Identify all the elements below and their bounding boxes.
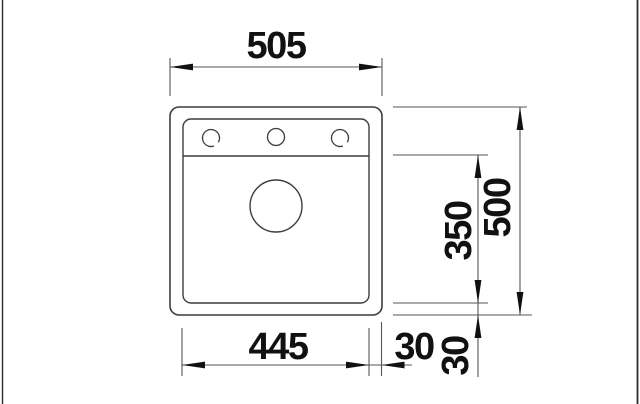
arrow-500-up-icon [517,107,524,130]
dim-label-overall-depth: 500 [479,179,517,238]
dim-label-side-offset: 30 [394,328,433,366]
drain-circle-icon [250,180,302,232]
sink-body [170,107,382,315]
arrow-505-right-icon [359,64,382,71]
arrow-445-left-icon [182,362,205,369]
tap-hole-left-icon [202,130,219,147]
tap-hole-center-icon [268,129,285,146]
arrow-350-up-icon [475,155,482,178]
arrow-505-left-icon [170,64,193,71]
dim-label-bowl-depth: 350 [440,202,478,261]
arrow-500-down-icon [517,292,524,315]
tap-hole-right-icon [331,130,348,147]
dim-label-overall-width: 505 [247,27,306,65]
dim-label-bowl-width: 445 [249,328,308,366]
arrow-30-vertical-icon [475,315,482,338]
arrow-445-right-icon [346,362,369,369]
arrow-350-down-icon [475,280,482,303]
dim-label-bottom-offset: 30 [437,336,475,375]
sink-outer-rim [170,107,382,315]
technical-drawing-canvas: 505 500 350 445 30 30 [0,0,640,404]
drawing-linework [0,0,640,404]
